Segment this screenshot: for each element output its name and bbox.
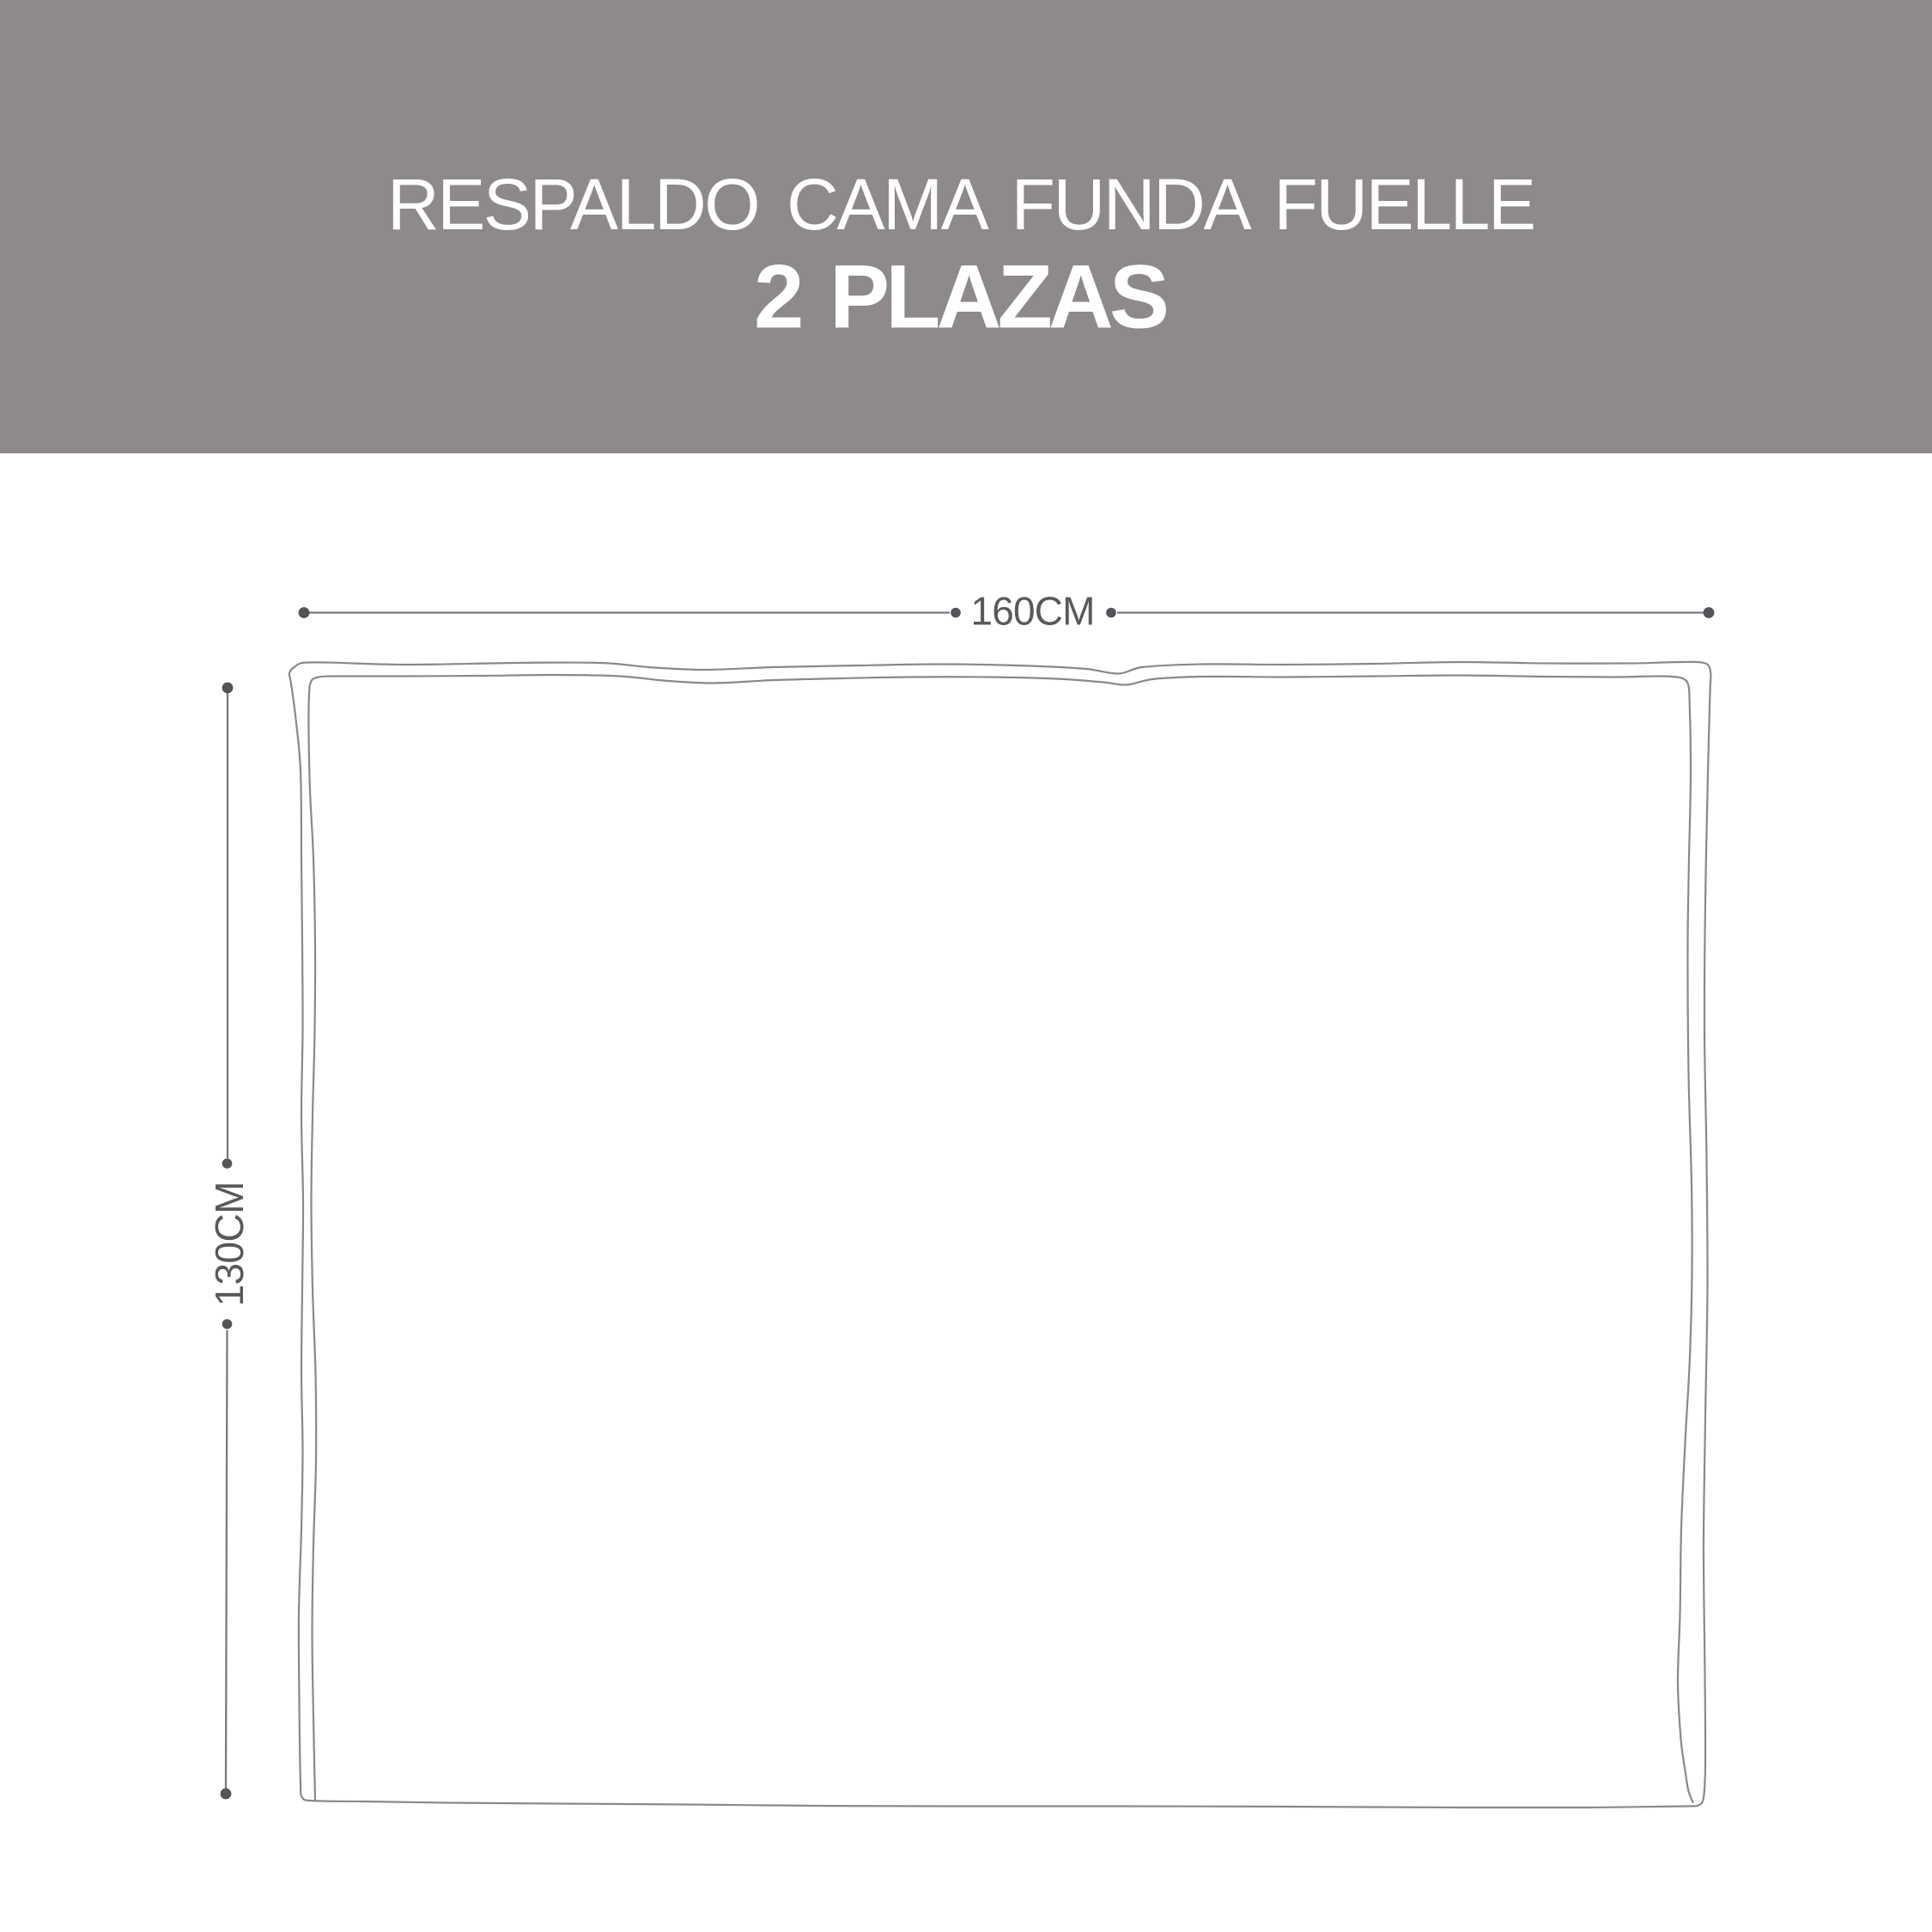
svg-text:160CM: 160CM (971, 589, 1096, 634)
svg-text:130CM: 130CM (207, 1182, 252, 1307)
svg-text:2 PLAZAS: 2 PLAZAS (754, 247, 1170, 348)
svg-text:RESPALDO CAMA FUNDA FUELLE: RESPALDO CAMA FUNDA FUELLE (387, 164, 1536, 245)
